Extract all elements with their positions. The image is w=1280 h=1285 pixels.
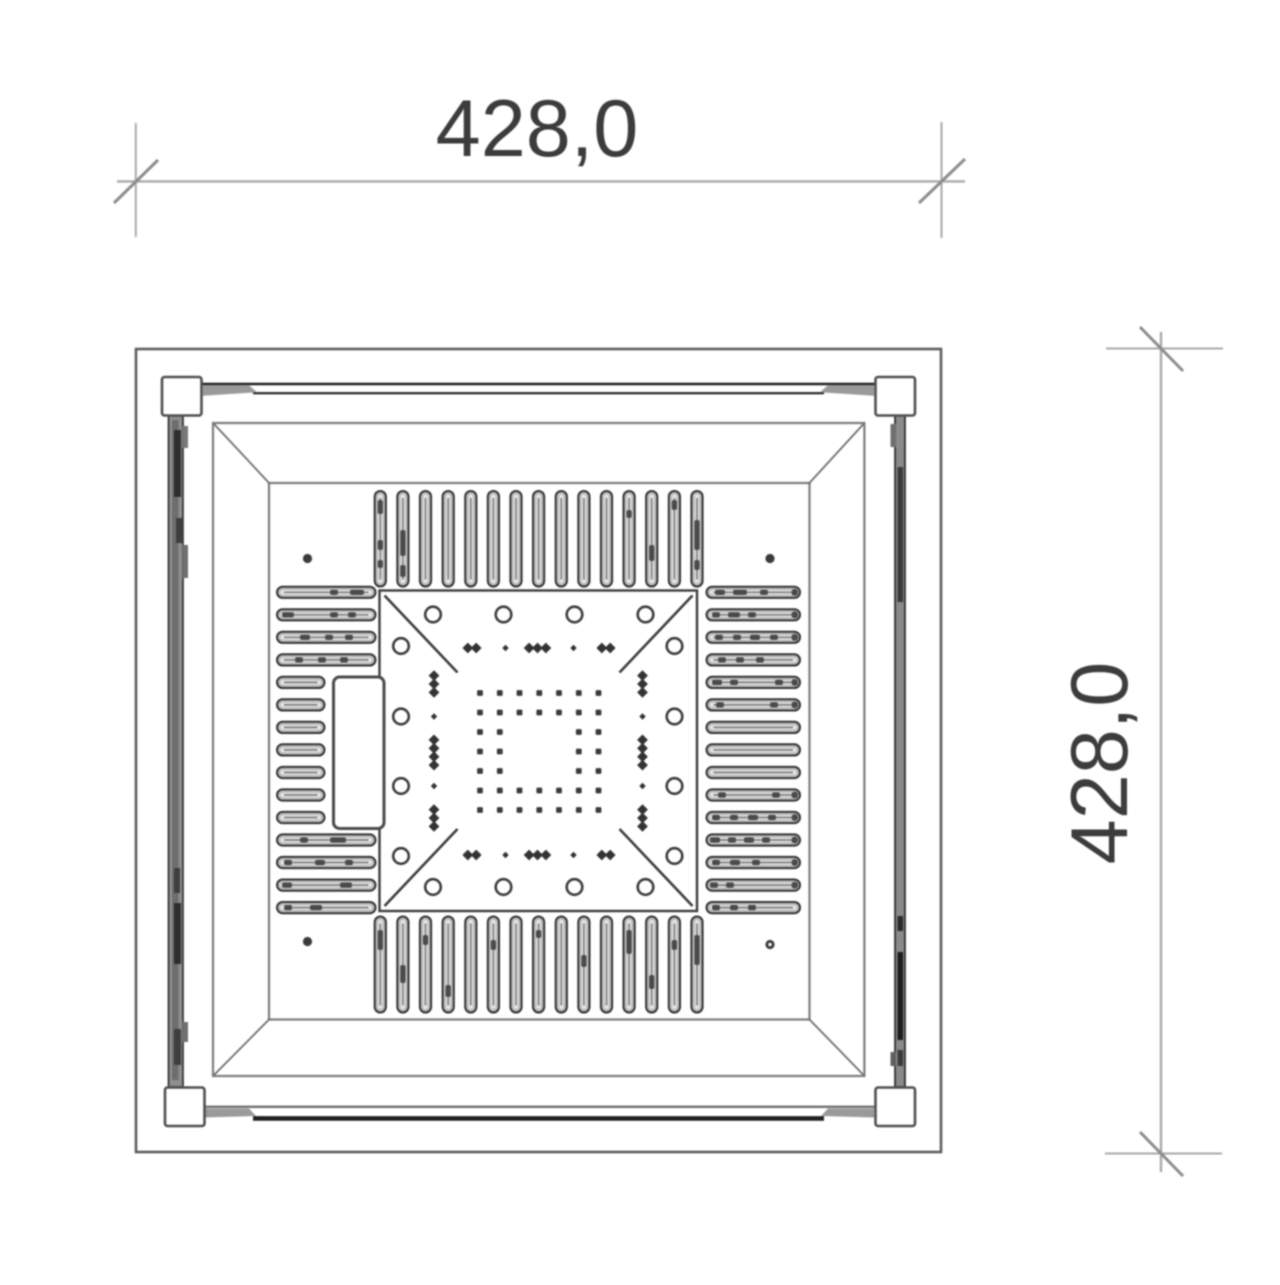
svg-text:428,0: 428,0 [1055, 662, 1145, 865]
svg-text:428,0: 428,0 [436, 84, 639, 174]
